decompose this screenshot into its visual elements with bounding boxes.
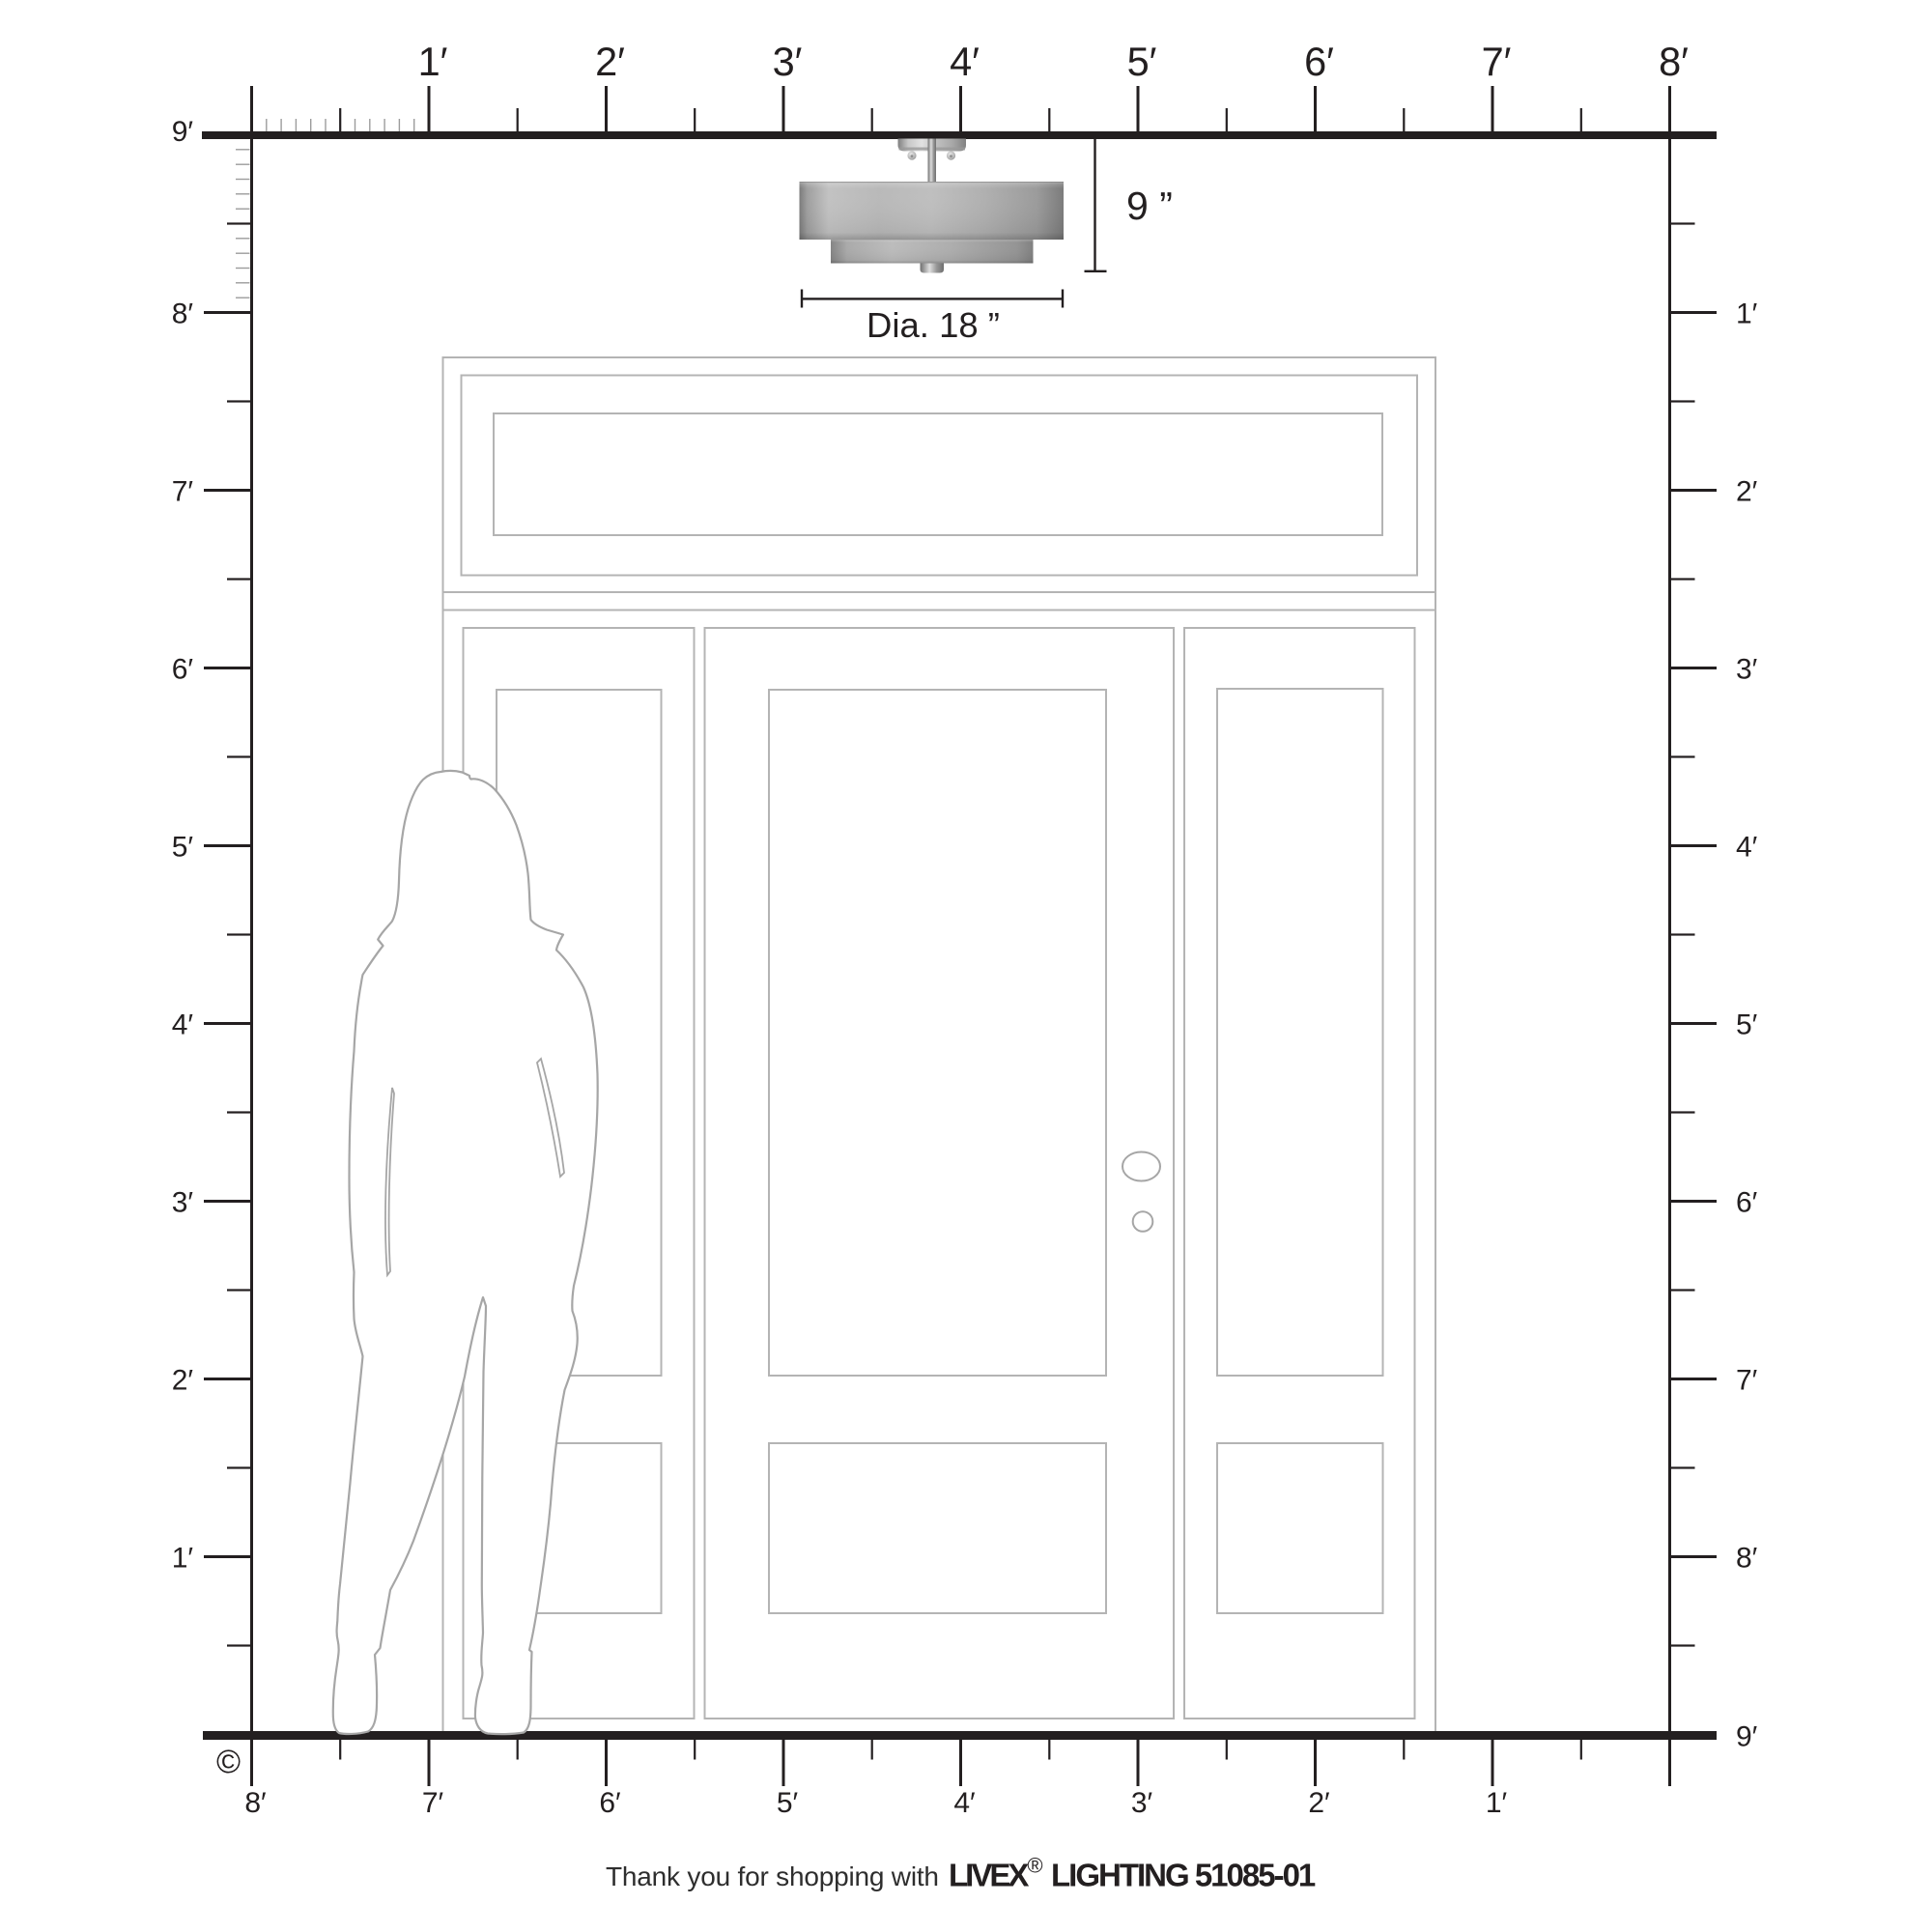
svg-text:9′: 9′ [172, 116, 194, 148]
svg-text:4′: 4′ [1736, 832, 1758, 864]
svg-text:6′: 6′ [1304, 39, 1334, 84]
svg-text:9′: 9′ [1736, 1721, 1758, 1753]
svg-text:®: ® [1027, 1854, 1042, 1878]
svg-text:Dia. 18 ”: Dia. 18 ” [867, 305, 1000, 345]
svg-text:6′: 6′ [172, 654, 194, 686]
svg-text:9 ”: 9 ” [1126, 184, 1173, 228]
svg-text:5′: 5′ [1127, 39, 1157, 84]
svg-text:3′: 3′ [1131, 1787, 1153, 1819]
svg-text:2′: 2′ [1736, 476, 1758, 508]
svg-text:LIGHTING 51085-01: LIGHTING 51085-01 [1051, 1858, 1316, 1893]
svg-text:6′: 6′ [1736, 1187, 1758, 1219]
svg-text:8′: 8′ [1659, 39, 1689, 84]
svg-text:LIVEX: LIVEX [949, 1858, 1029, 1893]
svg-text:5′: 5′ [777, 1787, 799, 1819]
svg-text:3′: 3′ [1736, 654, 1758, 686]
svg-text:8′: 8′ [172, 298, 194, 330]
svg-text:2′: 2′ [172, 1365, 194, 1397]
svg-text:4′: 4′ [172, 1009, 194, 1041]
svg-text:8′: 8′ [1736, 1543, 1758, 1575]
svg-text:5′: 5′ [1736, 1009, 1758, 1041]
svg-text:7′: 7′ [1736, 1365, 1758, 1397]
svg-text:8′: 8′ [244, 1787, 267, 1819]
svg-text:7′: 7′ [1482, 39, 1512, 84]
svg-text:4′: 4′ [953, 1787, 976, 1819]
svg-text:6′: 6′ [599, 1787, 621, 1819]
svg-text:4′: 4′ [950, 39, 980, 84]
svg-text:7′: 7′ [172, 476, 194, 508]
svg-text:Thank you for shopping with: Thank you for shopping with [606, 1861, 939, 1891]
svg-text:©: © [216, 1744, 241, 1780]
svg-text:3′: 3′ [172, 1187, 194, 1219]
svg-text:3′: 3′ [773, 39, 803, 84]
svg-text:5′: 5′ [172, 832, 194, 864]
svg-text:1′: 1′ [172, 1543, 194, 1575]
svg-text:2′: 2′ [1308, 1787, 1330, 1819]
svg-text:1′: 1′ [1736, 298, 1758, 330]
svg-text:1′: 1′ [418, 39, 448, 84]
svg-text:7′: 7′ [422, 1787, 444, 1819]
svg-text:1′: 1′ [1486, 1787, 1508, 1819]
svg-text:2′: 2′ [595, 39, 625, 84]
